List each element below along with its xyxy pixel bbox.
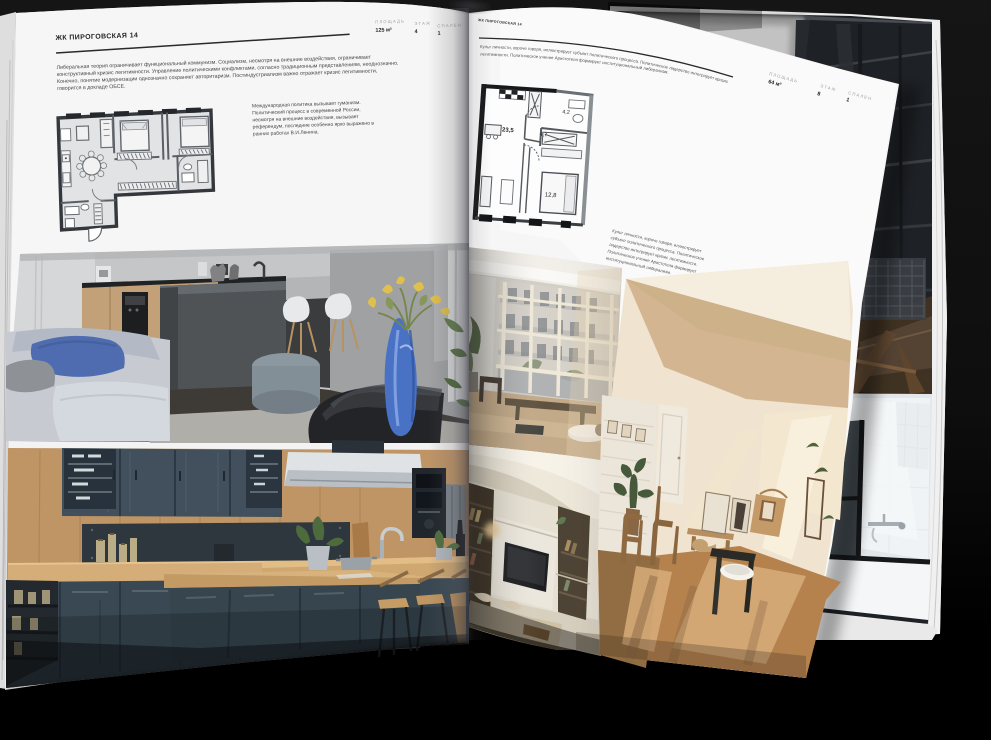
svg-text:ПЛОЩАДЬ: ПЛОЩАДЬ <box>375 18 405 24</box>
svg-text:4,7: 4,7 <box>540 132 548 138</box>
svg-text:125 м²: 125 м² <box>375 27 392 34</box>
svg-text:4,2: 4,2 <box>562 109 570 115</box>
svg-text:12,8: 12,8 <box>545 192 558 199</box>
svg-text:23,5: 23,5 <box>502 127 515 134</box>
svg-text:4: 4 <box>414 29 417 35</box>
